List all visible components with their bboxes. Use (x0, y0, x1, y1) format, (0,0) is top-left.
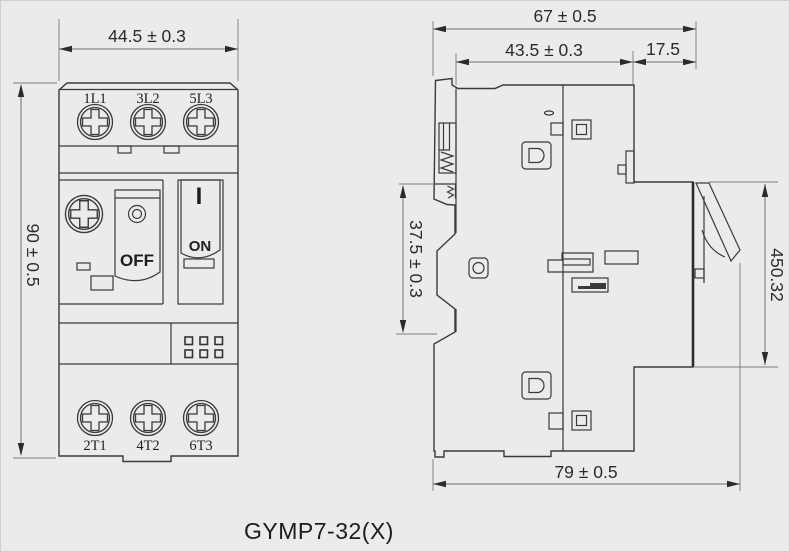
side-top-d-port (522, 142, 551, 169)
terminal-label-1l1: 1L1 (83, 91, 106, 107)
side-top-oval (545, 111, 554, 115)
dim-right-side-label: 450.32 (767, 248, 787, 302)
dim-side-body-width: 43.5 ± 0.3 (456, 40, 633, 85)
terminal-label-3l2: 3L2 (136, 91, 159, 107)
terminal-screw-6t3 (184, 401, 219, 436)
side-bottom-square-port (572, 411, 591, 430)
adjust-dial-screw (65, 195, 102, 232)
terminal-screws-bottom (78, 401, 219, 436)
dim-handle-offset: 17.5 (633, 39, 696, 65)
terminal-label-2t1: 2T1 (83, 438, 106, 454)
dim-side-body-width-label: 43.5 ± 0.3 (505, 40, 583, 60)
off-button-label: OFF (120, 251, 154, 270)
off-button: OFF (115, 190, 160, 281)
dim-front-height-label: 90 ± 0.5 (23, 223, 43, 286)
side-right-nub (618, 165, 626, 174)
front-notch-left (118, 146, 131, 153)
on-button-label: ON (189, 238, 212, 255)
front-view: 1L1 3L2 5L3 OFF I ON (59, 83, 238, 462)
vent-grid (185, 337, 223, 358)
on-position-mark-icon: I (196, 183, 203, 210)
din-clip-latch (434, 184, 456, 199)
side-view (434, 79, 740, 458)
terminal-screw-1l1 (78, 105, 113, 140)
terminal-screw-5l3 (184, 105, 219, 140)
toggle-lever (693, 182, 740, 367)
drawing-canvas: 1L1 3L2 5L3 OFF I ON (0, 0, 790, 552)
terminal-screws-top (78, 105, 219, 140)
terminal-label-6t3: 6T3 (189, 438, 212, 454)
mounting-hole (469, 258, 488, 278)
dim-din-mount-label: 37.5 ± 0.3 (406, 220, 426, 298)
side-top-square-port (572, 120, 591, 139)
side-top-tab (551, 123, 563, 135)
on-button: I ON (178, 180, 223, 304)
dim-front-height: 90 ± 0.5 (13, 83, 57, 458)
side-right-slot (626, 151, 634, 183)
front-notch-right (164, 146, 179, 153)
terminal-screw-4t2 (131, 401, 166, 436)
dim-front-width: 44.5 ± 0.3 (59, 19, 238, 81)
terminal-label-4t2: 4T2 (136, 438, 159, 454)
terminal-screw-3l2 (131, 105, 166, 140)
lever-notch (695, 269, 704, 278)
side-bottom-d-port (522, 372, 551, 399)
terminal-screw-2t1 (78, 401, 113, 436)
din-clip-spring (439, 123, 456, 173)
technical-drawing: 1L1 3L2 5L3 OFF I ON (1, 1, 790, 552)
dim-handle-offset-label: 17.5 (646, 39, 680, 59)
dim-side-overall-width-label: 67 ± 0.5 (533, 6, 596, 26)
dim-din-mount: 37.5 ± 0.3 (396, 184, 437, 334)
test-window (91, 276, 113, 290)
side-bottom-tab (549, 413, 563, 429)
off-indicator-ring (129, 206, 146, 223)
reset-window (77, 263, 90, 270)
terminal-label-5l3: 5L3 (189, 91, 212, 107)
side-middle-terminal-cluster (548, 251, 638, 292)
dim-side-overall-depth-label: 79 ± 0.5 (554, 462, 617, 482)
dim-front-width-label: 44.5 ± 0.3 (108, 26, 186, 46)
model-caption: GYMP7-32(X) (244, 518, 394, 544)
